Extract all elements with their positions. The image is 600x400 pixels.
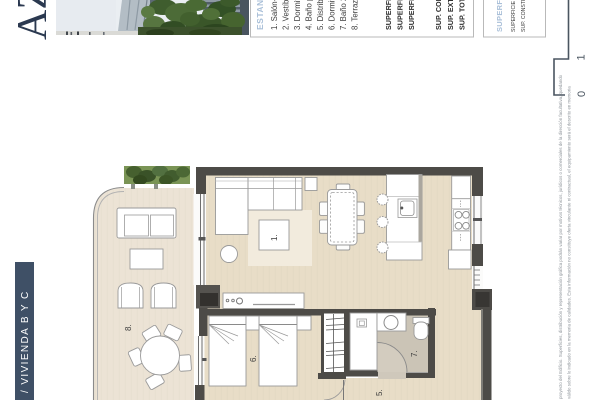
svg-text:válido sobre lo indicado en la: válido sobre lo indicado en la memoria d… xyxy=(567,86,572,399)
svg-text:5.: 5. xyxy=(375,389,384,396)
svg-text:SUP. CONSTRUIDA TOTAL: SUP. CONSTRUIDA TOTAL xyxy=(521,0,527,32)
svg-text:SUPERFICIE ÚTIL TOTAL: SUPERFICIE ÚTIL TOTAL xyxy=(407,0,416,30)
svg-text:SUPERFICIE ÚTIL TERRAZA: SUPERFICIE ÚTIL TERRAZA xyxy=(396,0,405,30)
svg-text:SUPERFICIE ÚTIL INTERIOR: SUPERFICIE ÚTIL INTERIOR xyxy=(384,0,393,30)
svg-text:SUPERFICIE CONSTRUIDA: SUPERFICIE CONSTRUIDA xyxy=(511,0,517,32)
svg-text:1: 1 xyxy=(576,54,588,60)
svg-text:SUP. TOTAL: SUP. TOTAL xyxy=(458,0,467,30)
svg-text:/ VIVIENDA B Y C: / VIVIENDA B Y C xyxy=(20,290,31,393)
svg-text:SUP. CONSTRUIDA: SUP. CONSTRUIDA xyxy=(434,0,443,30)
svg-text:5. Distribuidor: 5. Distribuidor xyxy=(316,0,325,30)
svg-text:SUPERFICIE TOTAL: SUPERFICIE TOTAL xyxy=(495,0,504,32)
svg-text:AZ: AZ xyxy=(10,0,56,40)
svg-text:7. Baño 2: 7. Baño 2 xyxy=(339,0,348,30)
svg-text:ESTANCIAS: ESTANCIAS xyxy=(255,0,265,30)
svg-text:1.: 1. xyxy=(270,234,279,241)
svg-text:8.: 8. xyxy=(124,324,133,331)
svg-text:7.: 7. xyxy=(410,350,419,357)
svg-text:6.: 6. xyxy=(249,355,258,362)
svg-text:2. Vestíbulo: 2. Vestíbulo xyxy=(282,0,291,30)
svg-text:3. Dormitorio principal: 3. Dormitorio principal xyxy=(293,0,302,30)
svg-text:proyecto del Edificio. Superfi: proyecto del Edificio. Superficies, dist… xyxy=(558,74,563,399)
svg-text:SUP. EXTERIOR: SUP. EXTERIOR xyxy=(446,0,455,30)
svg-text:4. Baño principal: 4. Baño principal xyxy=(305,0,314,30)
svg-text:8. Terraza: 8. Terraza xyxy=(351,0,360,30)
svg-text:0: 0 xyxy=(576,91,588,97)
svg-text:6. Dormitorio 2: 6. Dormitorio 2 xyxy=(328,0,337,30)
svg-text:1. Salón-Comedor-Cocina: 1. Salón-Comedor-Cocina xyxy=(270,0,279,30)
